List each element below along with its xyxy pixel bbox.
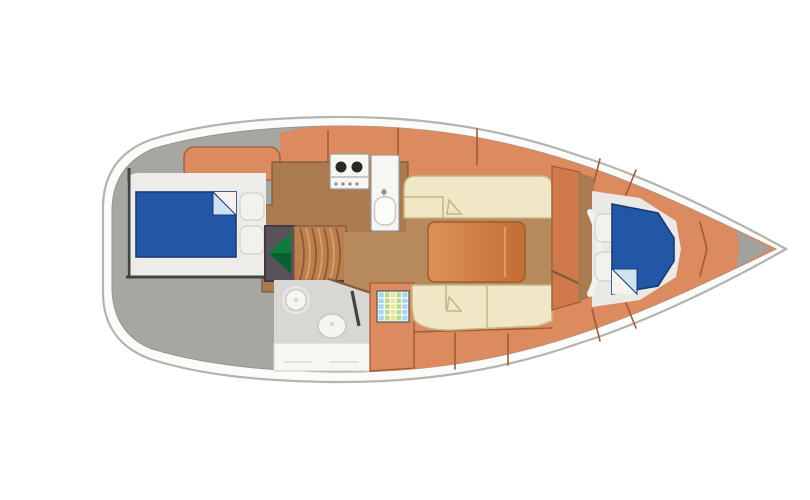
- aft-pillow-2: [240, 226, 264, 254]
- companionway: [265, 226, 347, 282]
- galley-sink-basin: [375, 197, 396, 225]
- head-toilet-flush: [330, 322, 334, 326]
- forward-bulkhead: [552, 166, 594, 310]
- chart-table: [370, 283, 414, 371]
- settee-port: [412, 285, 552, 330]
- bulkhead-salmon-band: [552, 166, 580, 310]
- head-wetroom: [274, 279, 371, 371]
- aft-pillow-1: [240, 193, 264, 220]
- stove-burner-left: [336, 162, 347, 173]
- mosaic-stripes: [379, 293, 408, 321]
- salon-table: [428, 222, 525, 282]
- stove-burner-right: [352, 162, 363, 173]
- head-counter: [274, 343, 371, 371]
- yacht-floor-plan: [0, 0, 810, 500]
- yacht-floor-plan-canvas: [0, 0, 810, 500]
- head-sink-drain: [294, 298, 298, 302]
